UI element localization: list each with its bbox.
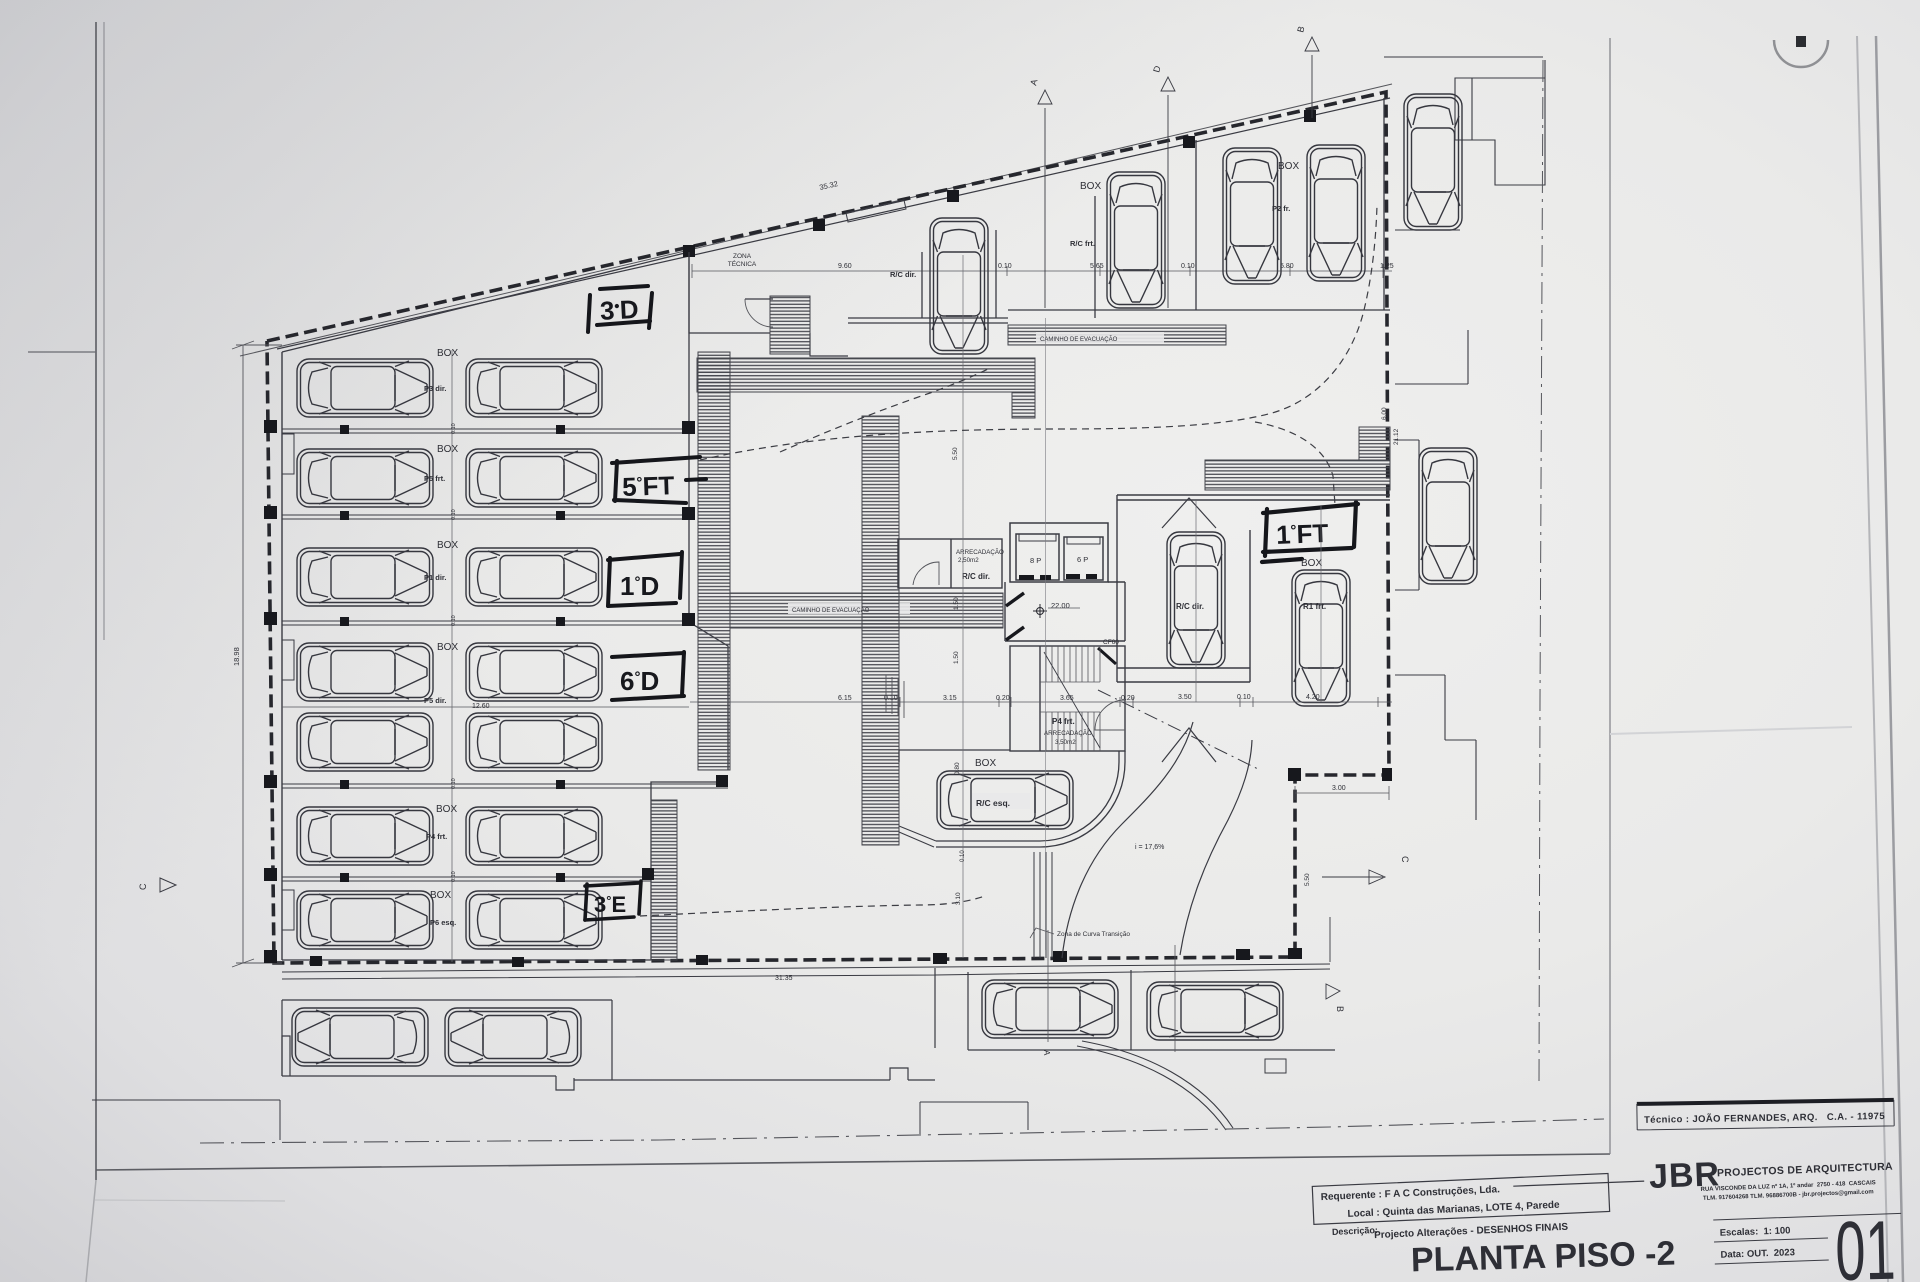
- svg-text:i = 17,6%: i = 17,6%: [1135, 844, 1164, 851]
- svg-text:TÉCNICA: TÉCNICA: [728, 259, 757, 268]
- svg-text:9.60: 9.60: [838, 263, 852, 270]
- svg-text:P4 frt.: P4 frt.: [1052, 717, 1075, 726]
- svg-text:BOX: BOX: [1301, 558, 1322, 569]
- svg-text:B: B: [1335, 1006, 1345, 1012]
- svg-text:1°D: 1°D: [620, 571, 659, 601]
- svg-text:P5 dir.: P5 dir.: [424, 696, 447, 705]
- svg-text:PLANTA PISO -2: PLANTA PISO -2: [1410, 1234, 1675, 1279]
- svg-text:18.98: 18.98: [232, 647, 241, 666]
- svg-text:3.65: 3.65: [1060, 695, 1074, 702]
- svg-text:0.10: 0.10: [1181, 263, 1195, 270]
- svg-text:R/C esq.: R/C esq.: [976, 798, 1010, 808]
- svg-text:BOX: BOX: [436, 804, 457, 815]
- svg-text:6 P: 6 P: [1077, 555, 1088, 564]
- svg-text:ARRECADAÇÃO: ARRECADAÇÃO: [1044, 730, 1092, 737]
- svg-text:P4 frt.: P4 frt.: [426, 832, 447, 841]
- svg-text:22.00: 22.00: [1051, 601, 1070, 610]
- svg-text:0.80: 0.80: [954, 762, 961, 775]
- svg-text:0.10: 0.10: [998, 263, 1012, 270]
- svg-text:Zona de Curva Transição: Zona de Curva Transição: [1057, 931, 1130, 938]
- svg-text:0.10: 0.10: [451, 778, 457, 789]
- svg-text:4.20: 4.20: [1306, 694, 1320, 701]
- svg-text:0.10: 0.10: [1237, 694, 1251, 701]
- svg-text:CAMINHO DE EVACUAÇÃO: CAMINHO DE EVACUAÇÃO: [792, 607, 870, 614]
- svg-text:0.20: 0.20: [1121, 695, 1135, 702]
- svg-text:3.15: 3.15: [943, 695, 957, 702]
- svg-text:2,50m2: 2,50m2: [958, 557, 979, 564]
- svg-text:R/C dir.: R/C dir.: [890, 270, 916, 279]
- svg-text:P2 fr.: P2 fr.: [1272, 204, 1290, 213]
- svg-text:01: 01: [1834, 1203, 1896, 1282]
- svg-text:21.12: 21.12: [1393, 428, 1400, 445]
- svg-text:31.35: 31.35: [775, 975, 793, 982]
- svg-text:CAMINHO DE EVACUAÇÃO: CAMINHO DE EVACUAÇÃO: [1040, 336, 1118, 343]
- svg-text:A: A: [1042, 1050, 1051, 1056]
- svg-text:P1 dir.: P1 dir.: [424, 573, 447, 582]
- svg-text:BOX: BOX: [437, 642, 458, 653]
- svg-text:1.50: 1.50: [953, 651, 960, 664]
- svg-text:BOX: BOX: [437, 348, 458, 359]
- svg-text:BOX: BOX: [975, 758, 996, 769]
- svg-text:R/C dir.: R/C dir.: [962, 572, 990, 581]
- svg-text:BOX: BOX: [1278, 161, 1299, 172]
- svg-text:P6 esq.: P6 esq.: [430, 918, 456, 927]
- svg-text:C: C: [138, 883, 148, 890]
- svg-text:0.10: 0.10: [451, 423, 457, 434]
- svg-text:0.10: 0.10: [451, 871, 457, 882]
- svg-text:P5 frt.: P5 frt.: [424, 474, 445, 483]
- svg-text:BOX: BOX: [437, 540, 458, 551]
- svg-text:BOX: BOX: [1080, 181, 1101, 192]
- svg-text:ZONA: ZONA: [733, 253, 752, 260]
- svg-text:BOX: BOX: [430, 890, 451, 901]
- svg-text:Descrição:: Descrição:: [1332, 1225, 1378, 1237]
- svg-text:C: C: [1400, 856, 1410, 863]
- svg-text:R/C frt.: R/C frt.: [1070, 239, 1095, 248]
- svg-text:5°FT: 5°FT: [622, 470, 675, 502]
- svg-text:0.10: 0.10: [451, 509, 457, 520]
- svg-text:5.50: 5.50: [1304, 873, 1311, 886]
- svg-text:BOX: BOX: [437, 444, 458, 455]
- svg-text:3.00: 3.00: [1332, 785, 1346, 792]
- svg-text:5.65: 5.65: [1090, 263, 1104, 270]
- svg-text:5.50: 5.50: [952, 447, 959, 460]
- svg-text:P3 dir.: P3 dir.: [424, 384, 447, 393]
- svg-text:0.20: 0.20: [996, 695, 1010, 702]
- svg-text:6°D: 6°D: [620, 666, 659, 696]
- svg-text:1.50: 1.50: [953, 597, 960, 610]
- svg-text:R/C dir.: R/C dir.: [1176, 602, 1204, 611]
- svg-text:8 P: 8 P: [1030, 556, 1041, 565]
- svg-text:6.00: 6.00: [1381, 407, 1388, 420]
- svg-text:1.25: 1.25: [1380, 263, 1394, 270]
- svg-text:3,50m2: 3,50m2: [1055, 739, 1076, 746]
- svg-text:5.80: 5.80: [1280, 263, 1294, 270]
- svg-text:3.50: 3.50: [1178, 694, 1192, 701]
- svg-text:12.60: 12.60: [472, 703, 490, 710]
- svg-text:0.10: 0.10: [451, 615, 457, 626]
- svg-text:6.15: 6.15: [838, 695, 852, 702]
- svg-text:R1 frt.: R1 frt.: [1303, 602, 1326, 611]
